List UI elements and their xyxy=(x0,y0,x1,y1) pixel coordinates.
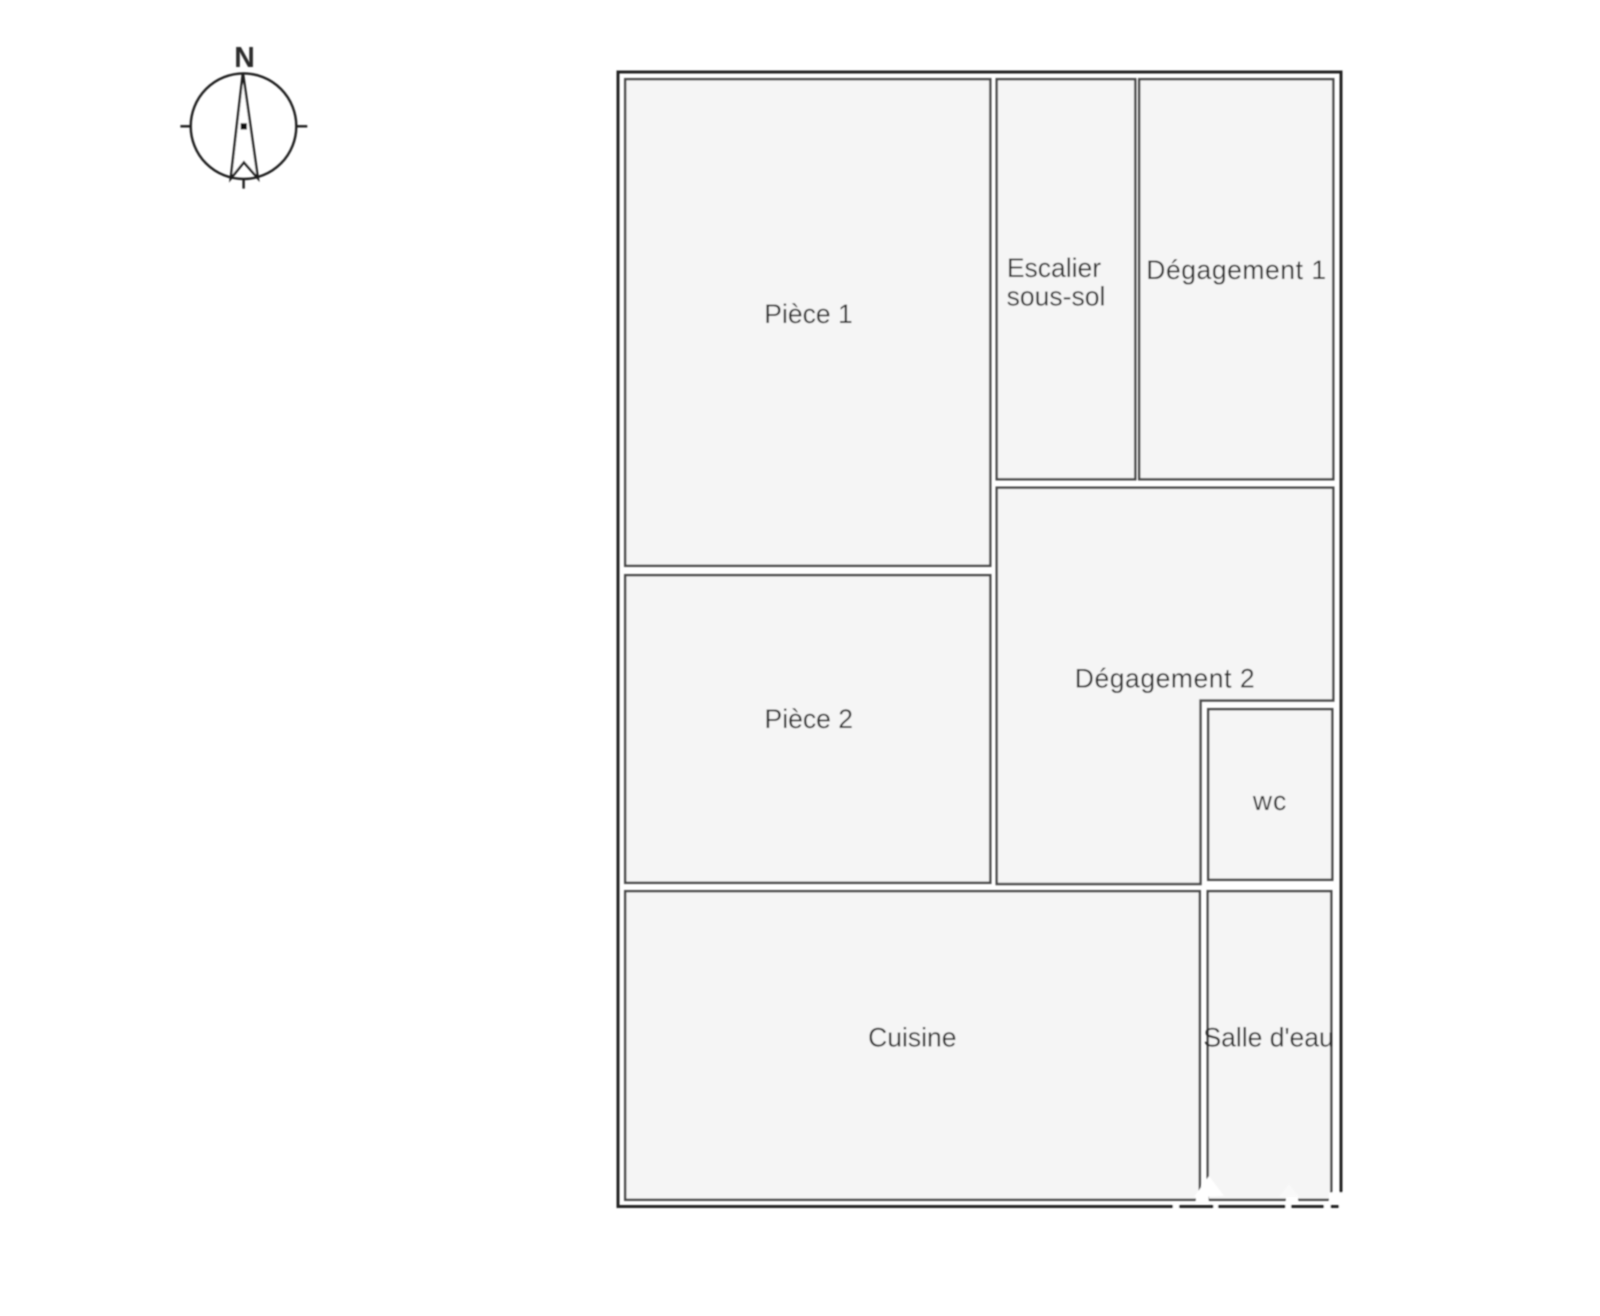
svg-text:Dégagement 1: Dégagement 1 xyxy=(1146,255,1326,285)
svg-text:Salle d'eau: Salle d'eau xyxy=(1203,1023,1333,1053)
svg-text:sous-sol: sous-sol xyxy=(1007,282,1106,312)
svg-text:Pièce 2: Pièce 2 xyxy=(765,704,853,734)
svg-text:Escalier: Escalier xyxy=(1007,253,1101,283)
svg-text:Dégagement 2: Dégagement 2 xyxy=(1075,664,1255,694)
svg-text:Pièce 1: Pièce 1 xyxy=(764,299,852,329)
svg-text:N: N xyxy=(234,42,255,74)
svg-text:wc: wc xyxy=(1252,786,1287,816)
svg-text:Cuisine: Cuisine xyxy=(868,1023,956,1053)
